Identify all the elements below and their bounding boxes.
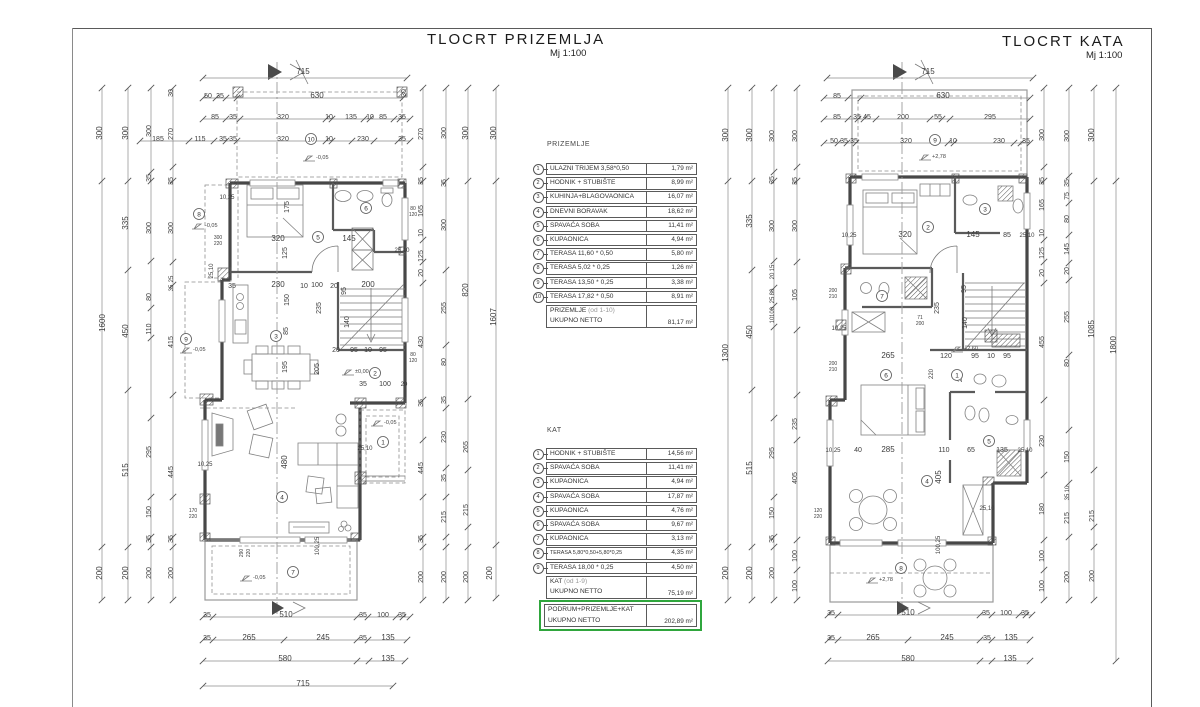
dim-label: 320 — [277, 136, 289, 143]
level-marker-value: -0,05 — [193, 347, 206, 353]
dim-label: 35 — [398, 612, 406, 619]
dim-label: 480 — [280, 455, 289, 469]
dim-label: 35 — [1039, 177, 1046, 185]
room-name: SPAVAĆA SOBA — [547, 221, 646, 231]
level-marker-value: +2,60 — [964, 346, 978, 352]
kat-table-header: KAT — [547, 427, 697, 436]
room-name: DNEVNI BORAVAK — [547, 207, 646, 217]
level-marker-icon — [371, 421, 383, 426]
room-area: 8,91 m² — [646, 292, 696, 302]
dim-label: 145 — [342, 234, 356, 243]
dim-label: 85 — [833, 93, 841, 100]
dim-label: 320 — [898, 230, 912, 239]
room-name: TERASA 17,82 * 0,50 — [547, 292, 646, 302]
room-area: 16,07 m² — [646, 192, 696, 202]
room-area: 1,79 m² — [646, 164, 696, 174]
dim-label: 290 — [239, 549, 245, 558]
room-area: 4,94 m² — [646, 477, 696, 487]
room-area: 5,80 m² — [646, 249, 696, 259]
dim-label: 95 — [379, 347, 387, 354]
room-number: 9 — [933, 137, 937, 144]
right-bath7-fixtures — [861, 277, 928, 299]
dim-label: 235 — [316, 302, 323, 314]
left-dining-set — [244, 346, 318, 389]
dim-label: 35 — [418, 399, 425, 407]
dim-label: 200 — [121, 566, 130, 580]
room-name: TERASA 13,50 * 0,25 — [547, 278, 646, 288]
room-number: 5 — [987, 438, 991, 445]
dim-label: 185 — [152, 136, 164, 143]
dim-label: 200 — [485, 566, 494, 580]
left-room-numbers: 10865392147 — [181, 134, 389, 578]
dim-label: 10,25 — [831, 326, 847, 332]
dim-label: 580 — [278, 654, 292, 663]
room-number: 5 — [316, 234, 320, 241]
room-number: 4 — [280, 494, 284, 501]
level-marker-icon — [180, 348, 192, 353]
room-area: 3,13 m² — [646, 534, 696, 544]
right-hall1-fixtures — [974, 374, 1006, 387]
dim-label: 300 — [1064, 130, 1071, 142]
dim-label: 35 — [441, 396, 448, 404]
right-level-markers: +2,78+2,60+2,78 — [866, 154, 978, 583]
dim-label: 10 — [770, 316, 776, 323]
dim-label: 510 — [279, 610, 293, 619]
dim-label: 300 — [792, 130, 799, 142]
dim-label: 80 — [770, 288, 776, 295]
table-row: 5SPAVAĆA SOBA11,41 m² — [546, 220, 697, 232]
dim-label: 50 — [204, 93, 212, 100]
kat-table-rows: 1HODNIK + STUBIŠTE14,56 m²2SPAVAĆA SOBA1… — [546, 448, 697, 631]
dim-label: 35 — [203, 635, 211, 642]
right-bed2 — [863, 190, 917, 254]
dim-label: 195 — [282, 361, 289, 373]
room-area: 1,26 m² — [646, 263, 696, 273]
dim-label: 300 — [121, 126, 130, 140]
table-row: 7TERASA 11,60 * 0,505,80 m² — [546, 248, 697, 260]
room-name: SPAVAĆA SOBA — [547, 492, 646, 502]
room-name: ULAZNI TRIJEM 3,58*0,50 — [547, 164, 646, 174]
dim-label: 35 — [169, 284, 175, 291]
dim-label: 85 — [1003, 232, 1011, 239]
dim-label: 95 — [971, 353, 979, 360]
dim-label: 300 — [441, 219, 448, 231]
table-row: 9TERASA 13,50 * 0,253,38 m² — [546, 277, 697, 289]
dim-label: 1600 — [98, 314, 107, 332]
dim-label: 300 — [792, 220, 799, 232]
dim-label: 150 — [1064, 451, 1071, 463]
dim-label: 20 — [1064, 267, 1071, 275]
dim-label: 25,10 — [1019, 233, 1035, 239]
dim-label: 265 — [866, 633, 880, 642]
level-marker-icon — [342, 370, 354, 375]
dim-label: 95 — [961, 285, 968, 293]
dim-label: 200 — [897, 114, 909, 121]
left-bed — [247, 185, 303, 237]
row-number-circle: 3 — [533, 192, 544, 203]
prizemlje-table-rows: 1ULAZNI TRIJEM 3,58*0,501,79 m²2HODNIK +… — [546, 163, 697, 328]
dim-label: 180 — [1039, 503, 1046, 515]
dim-label: 200 — [418, 571, 425, 583]
dim-label: 300 — [168, 222, 175, 234]
row-number-circle: 3 — [533, 477, 544, 488]
dim-label: 1300 — [721, 344, 730, 362]
right-bed6 — [861, 385, 925, 435]
dim-label: 25,10 — [1017, 448, 1033, 454]
room-number: 8 — [899, 565, 903, 572]
dim-label: 100 — [377, 612, 389, 619]
dim-label: 285 — [881, 445, 895, 454]
dim-label: 75 — [1064, 192, 1071, 200]
row-number-circle: 9 — [533, 278, 544, 289]
dim-label: 65 — [967, 447, 975, 454]
dim-label: 135 — [1004, 633, 1018, 642]
left-terrace7-outline — [205, 540, 357, 600]
dim-label: 10,25 — [841, 233, 857, 239]
level-marker-value: -0,05 — [316, 155, 329, 161]
table-row: 4DNEVNI BORAVAK18,62 m² — [546, 206, 697, 218]
dim-label: 120 — [409, 358, 418, 364]
dim-label: 515 — [121, 463, 130, 477]
dim-label: 415 — [168, 336, 175, 348]
dim-label: 200 — [916, 321, 925, 327]
row-number-circle: 10 — [533, 292, 544, 303]
dim-label: 630 — [310, 91, 324, 100]
dim-label: 20 — [401, 382, 408, 388]
dim-label: 35 — [203, 612, 211, 619]
level-marker-icon — [192, 224, 204, 229]
dim-label: 445 — [418, 462, 425, 474]
dim-label: 230 — [271, 280, 285, 289]
table-row: 3KUHINJA+BLAGOVAONICA16,07 m² — [546, 191, 697, 203]
dim-label: 210 — [829, 294, 838, 300]
dim-label: 255 — [441, 302, 448, 314]
dim-label: 35 — [398, 114, 406, 121]
dim-label: 35 — [168, 177, 175, 185]
dim-label: 35 — [418, 535, 425, 543]
dim-label: 135 — [381, 633, 395, 642]
dim-label: 215 — [1089, 510, 1096, 522]
room-number: 2 — [926, 224, 930, 231]
dim-label: 10,25 — [825, 448, 841, 454]
grand-total-value: 202,89 m² — [646, 605, 696, 626]
dim-label: 255 — [1064, 311, 1071, 323]
dim-label: 510 — [901, 608, 915, 617]
row-number-circle: 8 — [533, 263, 544, 274]
table-row: 3KUPAONICA4,94 m² — [546, 476, 697, 488]
dim-label: 35 — [769, 176, 776, 184]
dim-label: 455 — [1039, 336, 1046, 348]
dim-label: 35 — [228, 283, 236, 290]
dim-label: 445 — [168, 466, 175, 478]
room-area: 4,50 m² — [646, 563, 696, 573]
dim-label: 320 — [271, 234, 285, 243]
dim-label: 405 — [934, 470, 943, 484]
dim-label: 95 — [1003, 353, 1011, 360]
dim-label: 220 — [814, 514, 823, 520]
dim-label: 35 — [1022, 138, 1030, 145]
dim-label: 35 — [827, 610, 835, 617]
dim-label: 20 — [330, 283, 338, 290]
row-number-circle: 7 — [533, 249, 544, 260]
dim-label: 85 — [211, 114, 219, 121]
table-row: 2HODNIK + STUBIŠTE8,99 m² — [546, 177, 697, 189]
subtotal-label-1: KAT (od 1-9) — [550, 577, 646, 588]
room-name: HODNIK + STUBIŠTE — [547, 178, 646, 188]
dim-label: 40 — [854, 447, 862, 454]
room-name: KUHINJA+BLAGOVAONICA — [547, 192, 646, 202]
dim-label: 125 — [282, 247, 289, 259]
row-number-circle: 8 — [533, 548, 544, 559]
dim-label: 80 — [1064, 359, 1071, 367]
table-row: 6SPAVAĆA SOBA9,67 m² — [546, 519, 697, 531]
dim-label: 80 — [1064, 215, 1071, 223]
dim-label: 245 — [316, 633, 330, 642]
dim-label: 95 — [350, 347, 358, 354]
dim-label: 35 — [398, 136, 406, 143]
dim-label: 10 — [325, 114, 333, 121]
dim-label: 10 — [1065, 485, 1071, 492]
room-area: 4,35 m² — [646, 548, 696, 558]
dim-label: 55 — [934, 114, 942, 121]
dim-label: 45 — [863, 114, 871, 121]
dim-label: 320 — [277, 114, 289, 121]
dim-label: 300 — [95, 126, 104, 140]
level-marker-value: +2,78 — [932, 154, 946, 160]
dim-label: 145 — [1064, 243, 1071, 255]
room-area: 11,41 m² — [646, 463, 696, 473]
left-dimension-chains — [99, 75, 499, 689]
dim-label: 230 — [441, 431, 448, 443]
dim-label: 35 — [216, 93, 224, 100]
dim-label: 175 — [284, 201, 291, 213]
dim-label: 35 — [769, 535, 776, 543]
row-number-circle: 2 — [533, 178, 544, 189]
dim-label: 200 — [769, 567, 776, 579]
room-number: 3 — [983, 206, 987, 213]
dim-label: 10 — [366, 114, 374, 121]
room-area: 9,67 m² — [646, 520, 696, 530]
dim-label: 145 — [966, 230, 980, 239]
room-number: 9 — [184, 336, 188, 343]
dim-label: 200 — [463, 571, 470, 583]
room-name: TERASA 18,00 * 0,25 — [547, 563, 646, 573]
dim-label: 35 — [146, 535, 153, 543]
table-row: 7KUPAONICA3,13 m² — [546, 533, 697, 545]
dim-label: 200 — [95, 566, 104, 580]
dim-label: 150 — [769, 507, 776, 519]
dim-label: 200 — [1089, 570, 1096, 582]
dim-label: 20 — [1039, 269, 1046, 277]
right-table4 — [850, 490, 897, 531]
table-row: 5KUPAONICA4,76 m² — [546, 505, 697, 517]
room-area: 3,38 m² — [646, 278, 696, 288]
dim-label: 265 — [463, 441, 470, 453]
room-area: 18,62 m² — [646, 207, 696, 217]
dim-label: 215 — [441, 511, 448, 523]
dim-label: 100 — [1039, 550, 1046, 562]
dim-label: 165 — [1039, 199, 1046, 211]
prizemlje-table-header: PRIZEMLJE — [547, 141, 697, 150]
left-dimension-labels: 7155035630303085353201013510853518511535… — [95, 67, 498, 688]
dim-label: 100 — [792, 550, 799, 562]
row-number-circle: 4 — [533, 492, 544, 503]
level-marker-icon — [240, 576, 252, 581]
dim-label: 220 — [929, 368, 935, 379]
dim-label: 320 — [900, 138, 912, 145]
dim-label: 300 — [146, 222, 153, 234]
dim-label: 200 — [168, 567, 175, 579]
dim-label: 80 — [441, 358, 448, 366]
dim-label: 100 — [1039, 580, 1046, 592]
dim-label: 295 — [146, 446, 153, 458]
dim-label: 235 — [792, 418, 799, 430]
room-area: 14,56 m² — [646, 449, 696, 459]
dim-label: 220 — [189, 514, 198, 520]
dim-label: 100 — [792, 580, 799, 592]
table-row: 9TERASA 18,00 * 0,254,50 m² — [546, 562, 697, 574]
dim-label: 25 — [770, 296, 776, 303]
dim-label: 100 — [379, 381, 391, 388]
row-number-circle: 5 — [533, 506, 544, 517]
dim-label: 20 — [770, 272, 776, 279]
room-name: TERASA 5,80*0,50+5,80*0,25 — [547, 548, 646, 558]
right-terrace8-table — [914, 559, 956, 597]
dim-label: 140 — [962, 317, 969, 329]
table-row: 2SPAVAĆA SOBA11,41 m² — [546, 462, 697, 474]
dim-label: 200 — [721, 566, 730, 580]
room-name: KUPAONICA — [547, 477, 646, 487]
dim-label: 20 — [418, 269, 425, 277]
dim-label: 10 — [300, 283, 308, 290]
room-name: TERASA 11,60 * 0,50 — [547, 249, 646, 259]
dim-label: 215 — [1064, 512, 1071, 524]
right-hall-wardrobe — [852, 312, 885, 332]
dim-label: 300 — [721, 128, 730, 142]
dim-label: 35 — [359, 381, 367, 388]
left-plan-geometry: 7155035630303085353201013510853518511535… — [95, 60, 499, 689]
right-plan-title: TLOCRT KATA — [1002, 33, 1125, 50]
dim-label: 200 — [146, 567, 153, 579]
subtotal-row: KAT (od 1-9)UKUPNO NETTO75,19 m² — [546, 576, 697, 599]
dim-label: 1800 — [1109, 336, 1118, 354]
level-marker-value: -0,05 — [384, 420, 397, 426]
dim-label: 140 — [344, 316, 351, 328]
row-number-circle: 1 — [533, 164, 544, 175]
dim-label: 1607 — [489, 308, 498, 326]
dim-label: 25 — [169, 275, 175, 282]
table-row: 8TERASA 5,80*0,50+5,80*0,254,35 m² — [546, 547, 697, 559]
room-area: 4,94 m² — [646, 235, 696, 245]
room-number: 2 — [373, 370, 377, 377]
dim-label: 335 — [745, 214, 754, 228]
dim-label: 35 — [983, 635, 991, 642]
row-number-circle: 2 — [533, 463, 544, 474]
dim-label: 270 — [168, 128, 175, 140]
dim-label: 295 — [769, 447, 776, 459]
right-balcony-outline — [852, 90, 1027, 177]
room-name: SPAVAĆA SOBA — [547, 463, 646, 473]
dim-label: 430 — [418, 336, 425, 348]
dim-label: 120 — [409, 212, 418, 218]
room-number: 6 — [884, 372, 888, 379]
left-plan-scale: Mj 1:100 — [550, 48, 586, 59]
drawing-sheet: .wall{stroke:#474747;stroke-width:3.2;fi… — [0, 0, 1200, 707]
dim-label: 450 — [745, 325, 754, 339]
dim-label: 100,25 — [315, 536, 321, 555]
dim-label: 35 — [441, 179, 448, 187]
dim-label: 515 — [745, 461, 754, 475]
dim-label: 230 — [357, 136, 369, 143]
row-number-circle: 5 — [533, 221, 544, 232]
dim-label: 265 — [242, 633, 256, 642]
room-area: 17,87 m² — [646, 492, 696, 502]
room-area: 11,41 m² — [646, 221, 696, 231]
table-row: 6KUPAONICA4,94 m² — [546, 234, 697, 246]
subtotal-value: 75,19 m² — [646, 577, 696, 598]
grand-total-label-2: UKUPNO NETTO — [548, 616, 646, 627]
dim-label: 35 — [359, 612, 367, 619]
dim-label: 235 — [934, 302, 941, 314]
dim-label: 25,10 — [979, 506, 995, 512]
dim-label: 35 — [229, 114, 237, 121]
dim-label: 35 — [1064, 179, 1071, 187]
dim-label: 35 — [792, 177, 799, 185]
dim-label: 200 — [745, 566, 754, 580]
room-name: KUPAONICA — [547, 534, 646, 544]
subtotal-label-2: UKUPNO NETTO — [550, 316, 646, 327]
dim-label: 125 — [1039, 247, 1046, 259]
dim-label: 230 — [1039, 435, 1046, 447]
dim-label: 105 — [792, 289, 799, 301]
dim-label: 165 — [418, 205, 425, 217]
dim-label: 1085 — [1087, 320, 1096, 338]
room-number: 4 — [925, 478, 929, 485]
dim-label: 715 — [296, 679, 310, 688]
subtotal-row: PRIZEMLJE (od 1-10)UKUPNO NETTO81,17 m² — [546, 305, 697, 328]
dim-label: 300 — [1039, 129, 1046, 141]
dim-label: 35 — [850, 138, 858, 145]
dim-label: 715 — [921, 67, 935, 76]
dim-label: 200 — [441, 571, 448, 583]
room-area: 4,76 m² — [646, 506, 696, 516]
dim-label: 135 — [1003, 654, 1017, 663]
dim-label: 220 — [246, 549, 252, 558]
dim-label: 35 — [853, 114, 861, 121]
grand-total-row: PODRUM+PRIZEMLJE+KAT UKUPNO NETTO202,89 … — [544, 604, 697, 627]
dim-label: 10 — [364, 347, 372, 354]
dim-label: 265 — [881, 351, 895, 360]
room-number: 1 — [381, 439, 385, 446]
dim-label: 10 — [325, 136, 333, 143]
subtotal-label-1: PRIZEMLJE (od 1-10) — [550, 306, 646, 317]
room-name: HODNIK + STUBIŠTE — [547, 449, 646, 459]
subtotal-label-2: UKUPNO NETTO — [550, 587, 646, 598]
row-number-circle: 4 — [533, 207, 544, 218]
dim-label: 245 — [940, 633, 954, 642]
dim-label: 300 — [146, 125, 153, 137]
dim-label: 135 — [345, 114, 357, 121]
dim-label: 820 — [461, 283, 470, 297]
dim-label: 20 — [332, 347, 340, 354]
dim-label: 35 — [168, 535, 175, 543]
dim-label: 715 — [296, 67, 310, 76]
dim-label: 10 — [418, 229, 425, 237]
dim-label: 100 — [1000, 610, 1012, 617]
dim-label: 300 — [489, 126, 498, 140]
dim-label: 35 — [359, 635, 367, 642]
room-number: 10 — [307, 136, 315, 143]
